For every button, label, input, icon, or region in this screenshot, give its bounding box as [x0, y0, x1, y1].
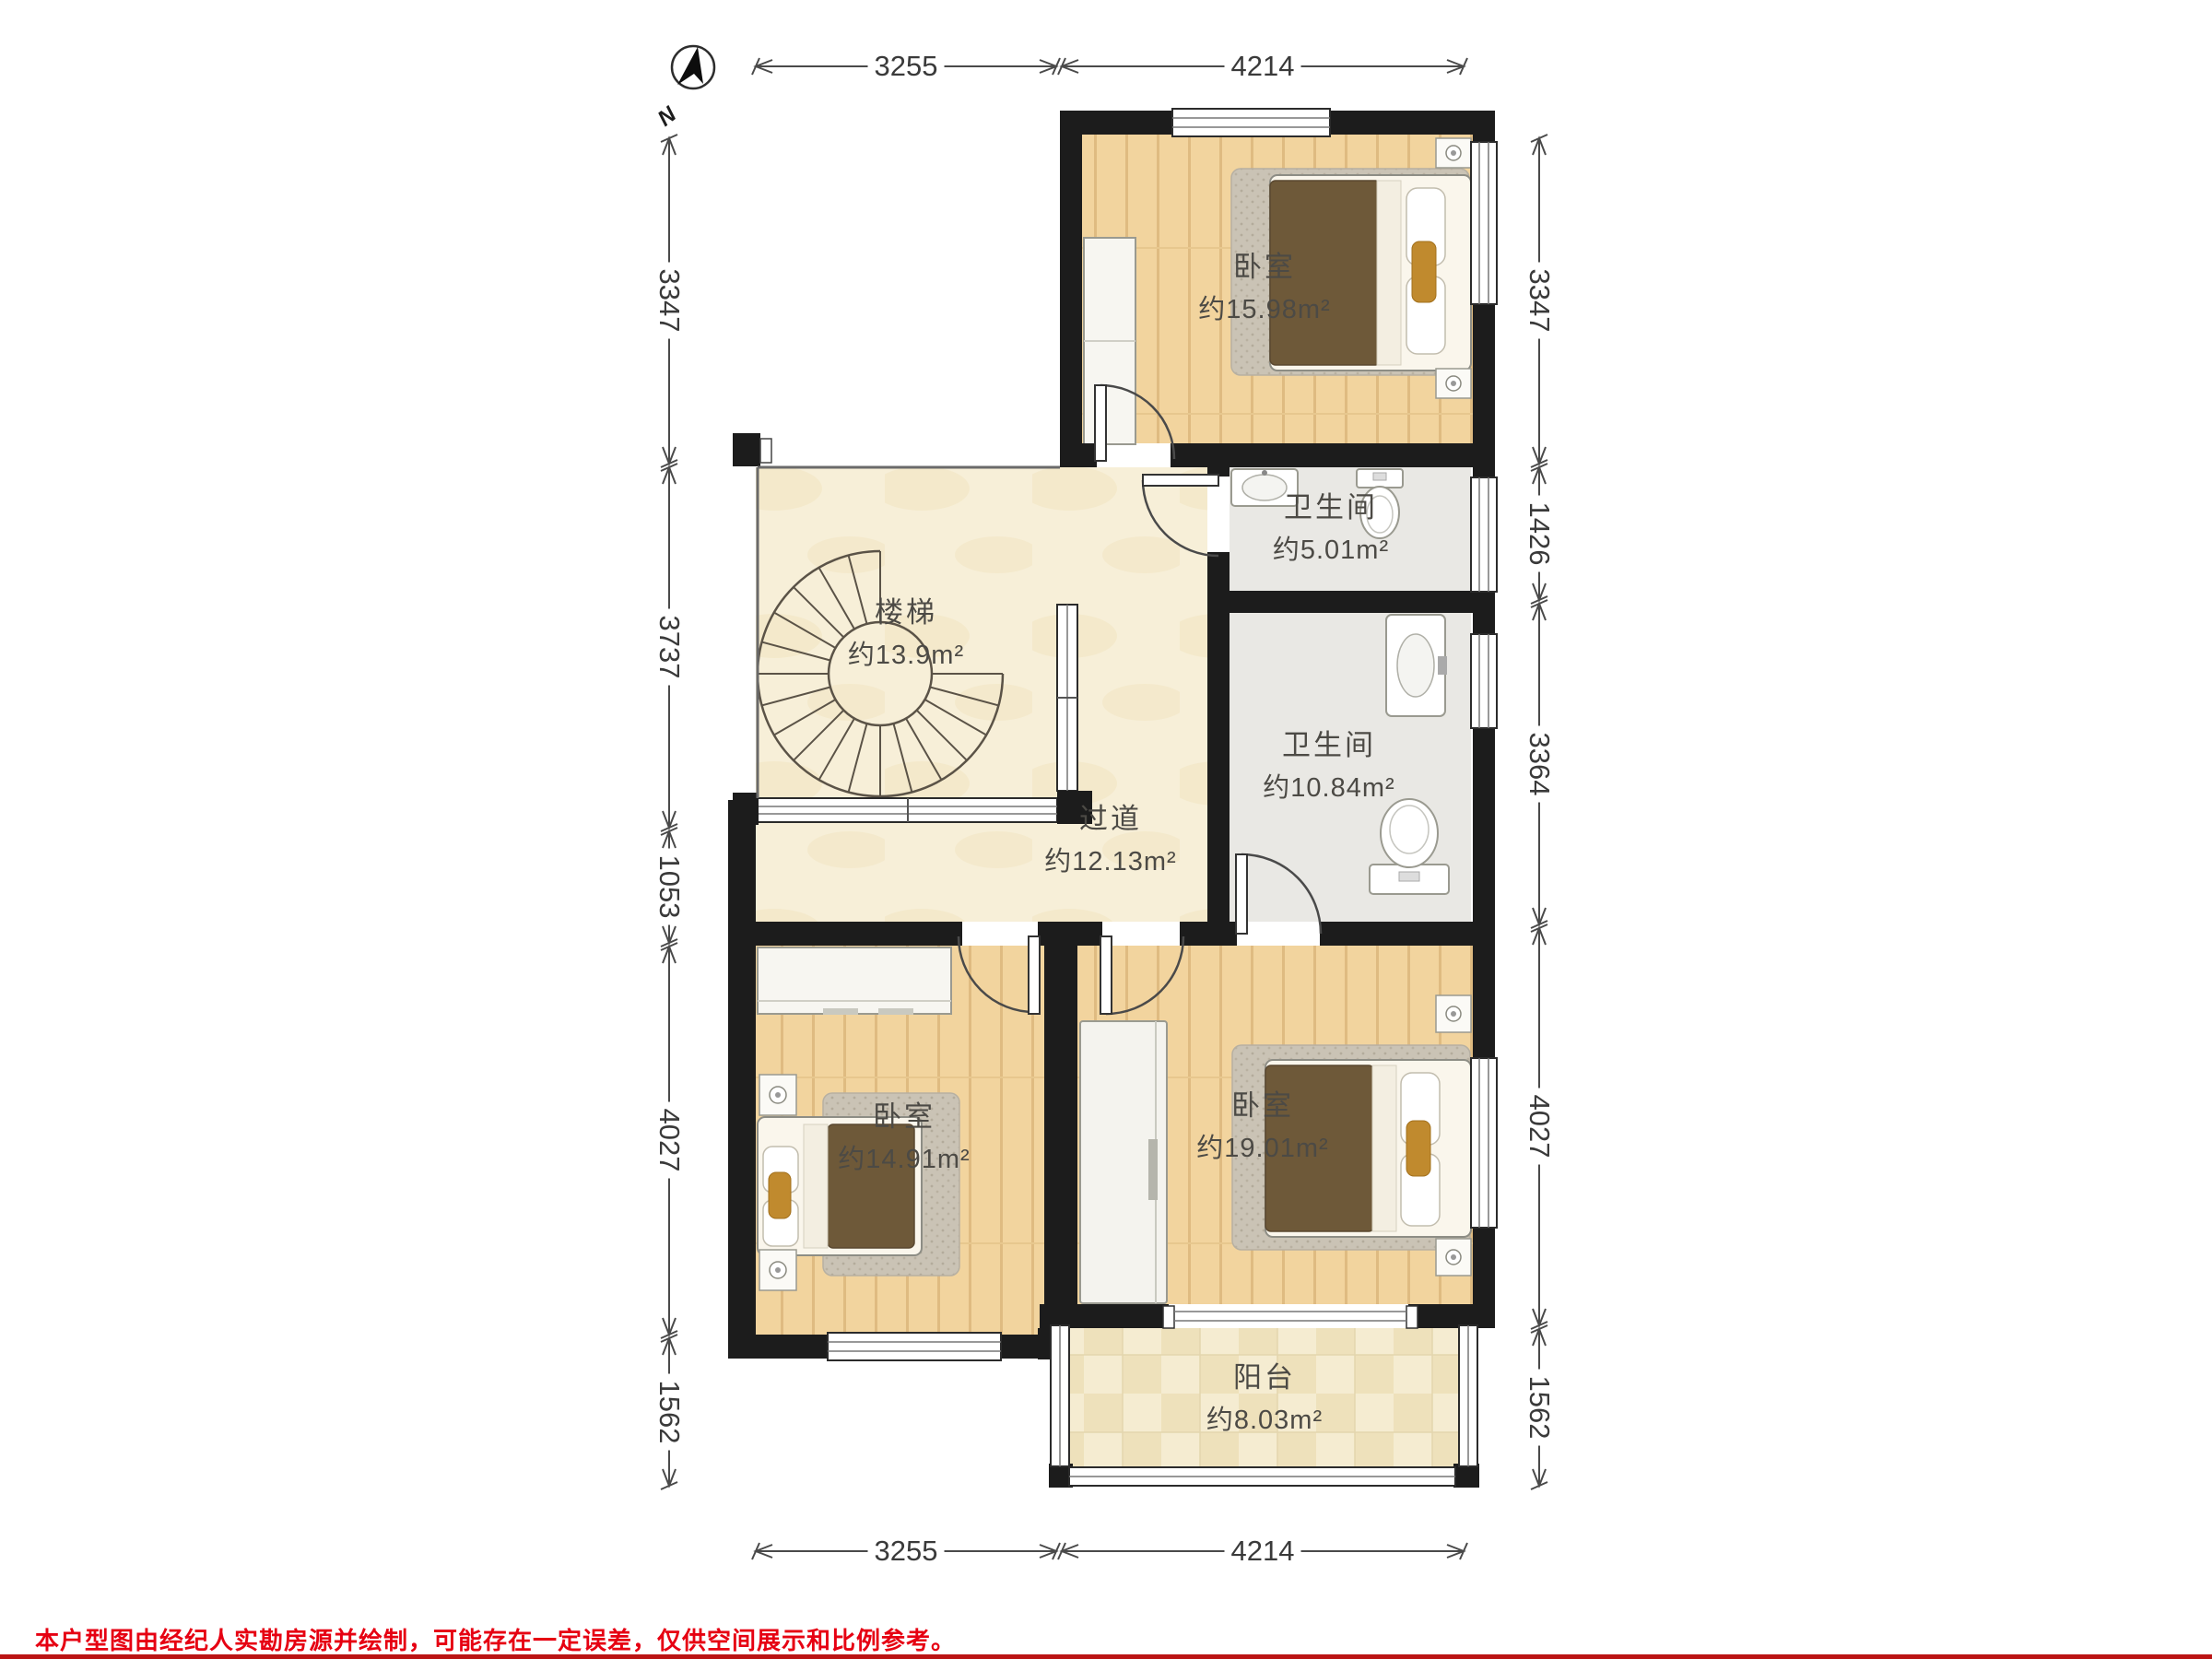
- window-bedroom-top-east: [1471, 142, 1497, 304]
- cushion: [1412, 241, 1436, 302]
- room-name: 卫生间: [1263, 722, 1394, 763]
- room-area: 约10.84m²: [1263, 766, 1394, 805]
- label-bedroom-left: 卧室 约14.91m²: [838, 1093, 970, 1176]
- room-area: 约8.03m²: [1206, 1398, 1323, 1437]
- room-name: 卧室: [1198, 243, 1330, 285]
- sheet-fold: [1377, 181, 1401, 365]
- sheet-fold: [1372, 1065, 1396, 1231]
- window-bedroom-right: [1471, 1058, 1497, 1228]
- label-bath-large: 卫生间 约10.84m²: [1263, 722, 1394, 805]
- room-area: 约13.9m²: [848, 633, 964, 672]
- dim-top-left: 3255: [868, 50, 945, 83]
- label-stairs: 楼梯 约13.9m²: [848, 589, 964, 672]
- room-name: 卫生间: [1273, 484, 1389, 525]
- room-area: 约14.91m²: [838, 1137, 970, 1176]
- dim-left-1: 3347: [653, 263, 686, 339]
- label-bedroom-top: 卧室 约15.98m²: [1198, 243, 1330, 326]
- dim-right-3: 3364: [1523, 726, 1556, 803]
- wardrobe-handle: [1148, 1139, 1158, 1200]
- window-bedroom-left-south: [828, 1333, 1001, 1360]
- room-area: 约19.01m²: [1196, 1126, 1328, 1165]
- disclaimer-text: 本户型图由经纪人实勘房源并绘制，可能存在一定误差，仅供空间展示和比例参考。: [35, 1622, 956, 1656]
- cushion: [769, 1172, 791, 1218]
- room-area: 约15.98m²: [1198, 288, 1330, 326]
- window-bath-small: [1471, 477, 1497, 592]
- label-bedroom-right: 卧室 约19.01m²: [1196, 1082, 1328, 1165]
- dim-bottom-left: 3255: [868, 1535, 945, 1568]
- dim-right-4: 4027: [1523, 1088, 1556, 1165]
- label-bath-small: 卫生间 约5.01m²: [1273, 484, 1389, 567]
- dim-bottom-right: 4214: [1225, 1535, 1301, 1568]
- room-name: 阳台: [1206, 1354, 1323, 1395]
- label-hallway: 过道 约12.13m²: [1044, 795, 1176, 878]
- dim-right-1: 3347: [1523, 263, 1556, 339]
- label-balcony: 阳台 约8.03m²: [1206, 1354, 1323, 1437]
- floor-plan-page: 卧室 约15.98m² 卫生间 约5.01m² 楼梯 约13.9m² 卫生间 约…: [0, 0, 2212, 1659]
- dim-left-4: 4027: [653, 1102, 686, 1179]
- faucet: [1438, 656, 1447, 675]
- compass: [672, 46, 714, 88]
- dim-top-right: 4214: [1225, 50, 1301, 83]
- room-name: 卧室: [838, 1093, 970, 1135]
- wall-window-mark: [760, 439, 771, 463]
- room-area: 约5.01m²: [1273, 528, 1389, 567]
- dim-right-5: 1562: [1523, 1370, 1556, 1446]
- dim-left-5: 1562: [653, 1374, 686, 1451]
- sheet-fold: [804, 1124, 828, 1248]
- cushion: [1406, 1121, 1430, 1176]
- room-name: 过道: [1044, 795, 1176, 837]
- toilet-bowl: [1381, 799, 1438, 867]
- dim-left-2: 3737: [653, 609, 686, 686]
- window-bedroom-top-north: [1172, 109, 1330, 136]
- room-name: 卧室: [1196, 1082, 1328, 1124]
- balcony-sliding-door: [1163, 1306, 1418, 1328]
- room-area: 约12.13m²: [1044, 840, 1176, 878]
- dim-right-2: 1426: [1523, 496, 1556, 572]
- window-bath-large: [1471, 634, 1497, 728]
- room-name: 楼梯: [848, 589, 964, 630]
- closet: [758, 947, 951, 1014]
- dim-left-3: 1053: [653, 849, 686, 925]
